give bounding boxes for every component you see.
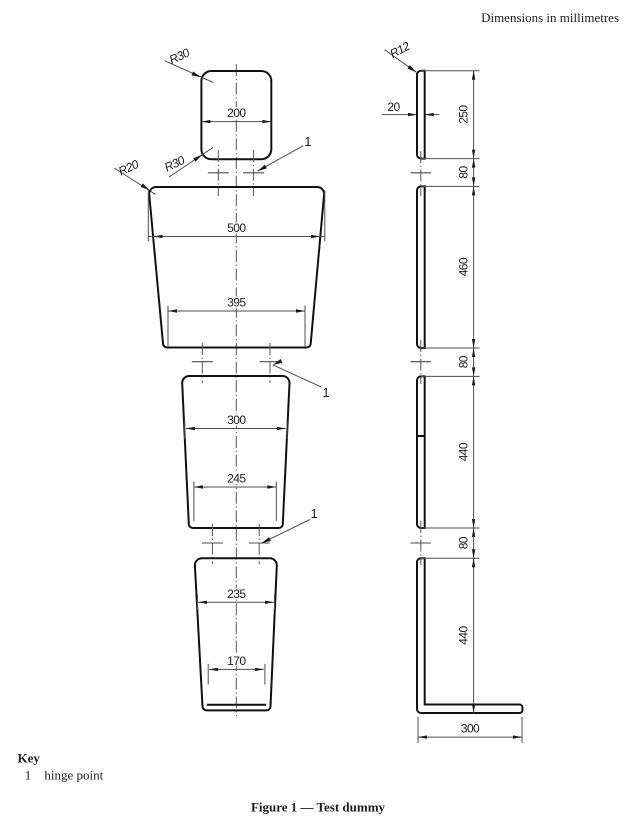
svg-text:395: 395: [227, 296, 246, 310]
svg-text:80: 80: [457, 536, 471, 549]
svg-text:R12: R12: [387, 39, 412, 61]
svg-text:1: 1: [322, 385, 329, 400]
svg-text:460: 460: [457, 257, 471, 276]
svg-text:R30: R30: [162, 153, 187, 175]
svg-text:235: 235: [227, 587, 246, 601]
svg-text:300: 300: [461, 721, 480, 735]
svg-text:Figure 1 — Test dummy: Figure 1 — Test dummy: [251, 800, 386, 815]
svg-text:R30: R30: [167, 45, 192, 67]
svg-text:170: 170: [227, 654, 246, 668]
svg-text:Dimensions in millimetres: Dimensions in millimetres: [481, 10, 619, 25]
svg-text:1: 1: [304, 134, 311, 149]
svg-text:Key: Key: [18, 751, 41, 766]
svg-text:hinge point: hinge point: [44, 768, 103, 783]
svg-text:80: 80: [457, 166, 471, 179]
svg-text:1: 1: [25, 768, 32, 783]
svg-text:440: 440: [457, 626, 471, 645]
svg-text:R20: R20: [116, 157, 141, 179]
svg-text:1: 1: [311, 506, 318, 521]
svg-text:80: 80: [457, 355, 471, 368]
svg-text:440: 440: [457, 442, 471, 461]
svg-text:500: 500: [227, 221, 246, 235]
svg-text:300: 300: [227, 413, 246, 427]
svg-text:250: 250: [457, 105, 471, 124]
svg-text:245: 245: [227, 472, 246, 486]
svg-text:200: 200: [227, 106, 246, 120]
svg-text:20: 20: [387, 100, 400, 114]
